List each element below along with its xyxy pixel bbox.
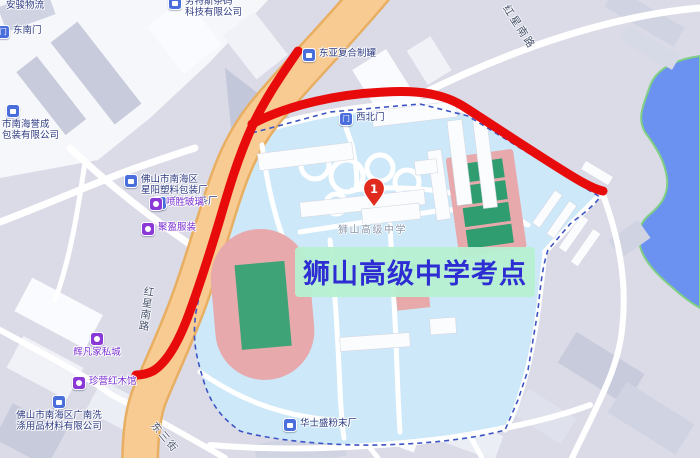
poi-anjun-logistics[interactable]: 安骏物流 [6,0,44,11]
gate-icon: 门 [0,25,10,39]
exam-site-marker[interactable]: 1 [362,177,386,209]
marker-number: 1 [370,182,378,196]
poi-juying-clothing[interactable]: 聚盈服装 [141,222,196,236]
poi-pensheng-glass[interactable]: 喷胜玻璃 [149,197,204,211]
exam-site-banner: 狮山高级中学考点 [295,247,535,297]
poi-zhenying-redwood[interactable]: 珍营红木馆 [72,376,137,390]
poi-yucheng-packaging[interactable]: 市南海誉成 包装有限公司 [2,104,59,141]
shop-icon [141,222,155,236]
company-icon [6,104,20,118]
poi-xingyang-plastic[interactable]: 佛山市南海区 星阳塑料包装厂 [124,174,208,196]
poi-southeast-gate[interactable]: 门 东南门 [0,25,42,39]
company-icon [302,48,316,62]
company-icon [168,0,182,10]
company-icon [283,418,297,432]
shop-icon [149,197,163,211]
school-name-label: 狮山高级中学 [338,221,407,236]
poi-guangnan-detergent[interactable]: 佛山市南海区广南洗 涤用品材料有限公司 [20,395,98,432]
gate-icon: 门 [339,112,353,126]
poi-northwest-gate[interactable]: 门 西北门 [339,112,385,126]
poi-dongya-can[interactable]: 东亚复合制罐 [302,48,376,62]
shop-icon [90,332,104,346]
poi-huifan-furniture[interactable]: 辉凡家私城 [68,332,126,358]
company-icon [52,395,66,409]
map-canvas[interactable]: 1 狮山高级中学考点 狮山高级中学 红星南路 红星南路 东三街 安骏物流 门 东… [0,0,700,458]
stadium-field [235,261,292,350]
poi-laotesi-tech[interactable]: 劳特斯条码 科技有限公司 [168,0,242,18]
company-icon [124,174,138,188]
poi-huashi-powder[interactable]: 华士盛粉末厂 [283,418,357,432]
shop-icon [72,376,86,390]
